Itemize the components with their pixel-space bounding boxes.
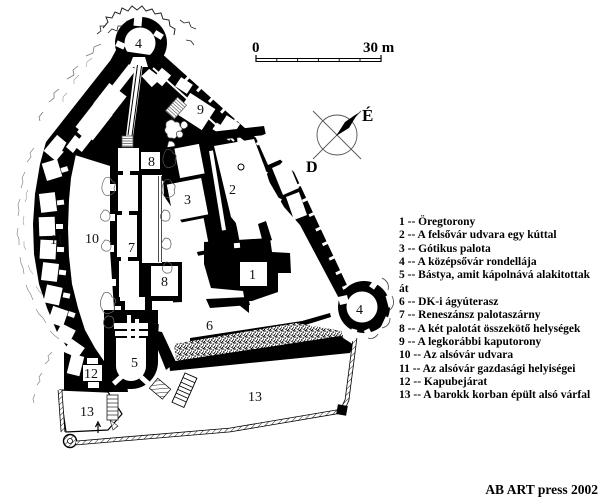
svg-text:12: 12 [84,367,98,382]
svg-text:5: 5 [131,356,138,371]
svg-text:1: 1 [249,268,256,283]
svg-text:30 m: 30 m [363,40,395,56]
svg-text:13: 13 [248,390,262,405]
svg-text:8: 8 [161,275,168,290]
svg-text:0: 0 [252,40,260,56]
svg-text:4: 4 [356,303,363,318]
svg-text:4: 4 [135,37,142,52]
svg-text:9: 9 [197,103,204,118]
svg-text:10: 10 [85,232,99,247]
svg-text:7: 7 [128,241,135,256]
svg-text:D: D [306,159,318,176]
svg-text:8: 8 [148,155,155,170]
svg-text:11: 11 [50,233,63,248]
svg-text:3: 3 [184,193,191,208]
svg-text:2: 2 [229,183,236,198]
svg-text:13: 13 [80,405,94,420]
svg-text:6: 6 [206,319,213,334]
svg-text:É: É [362,106,373,125]
